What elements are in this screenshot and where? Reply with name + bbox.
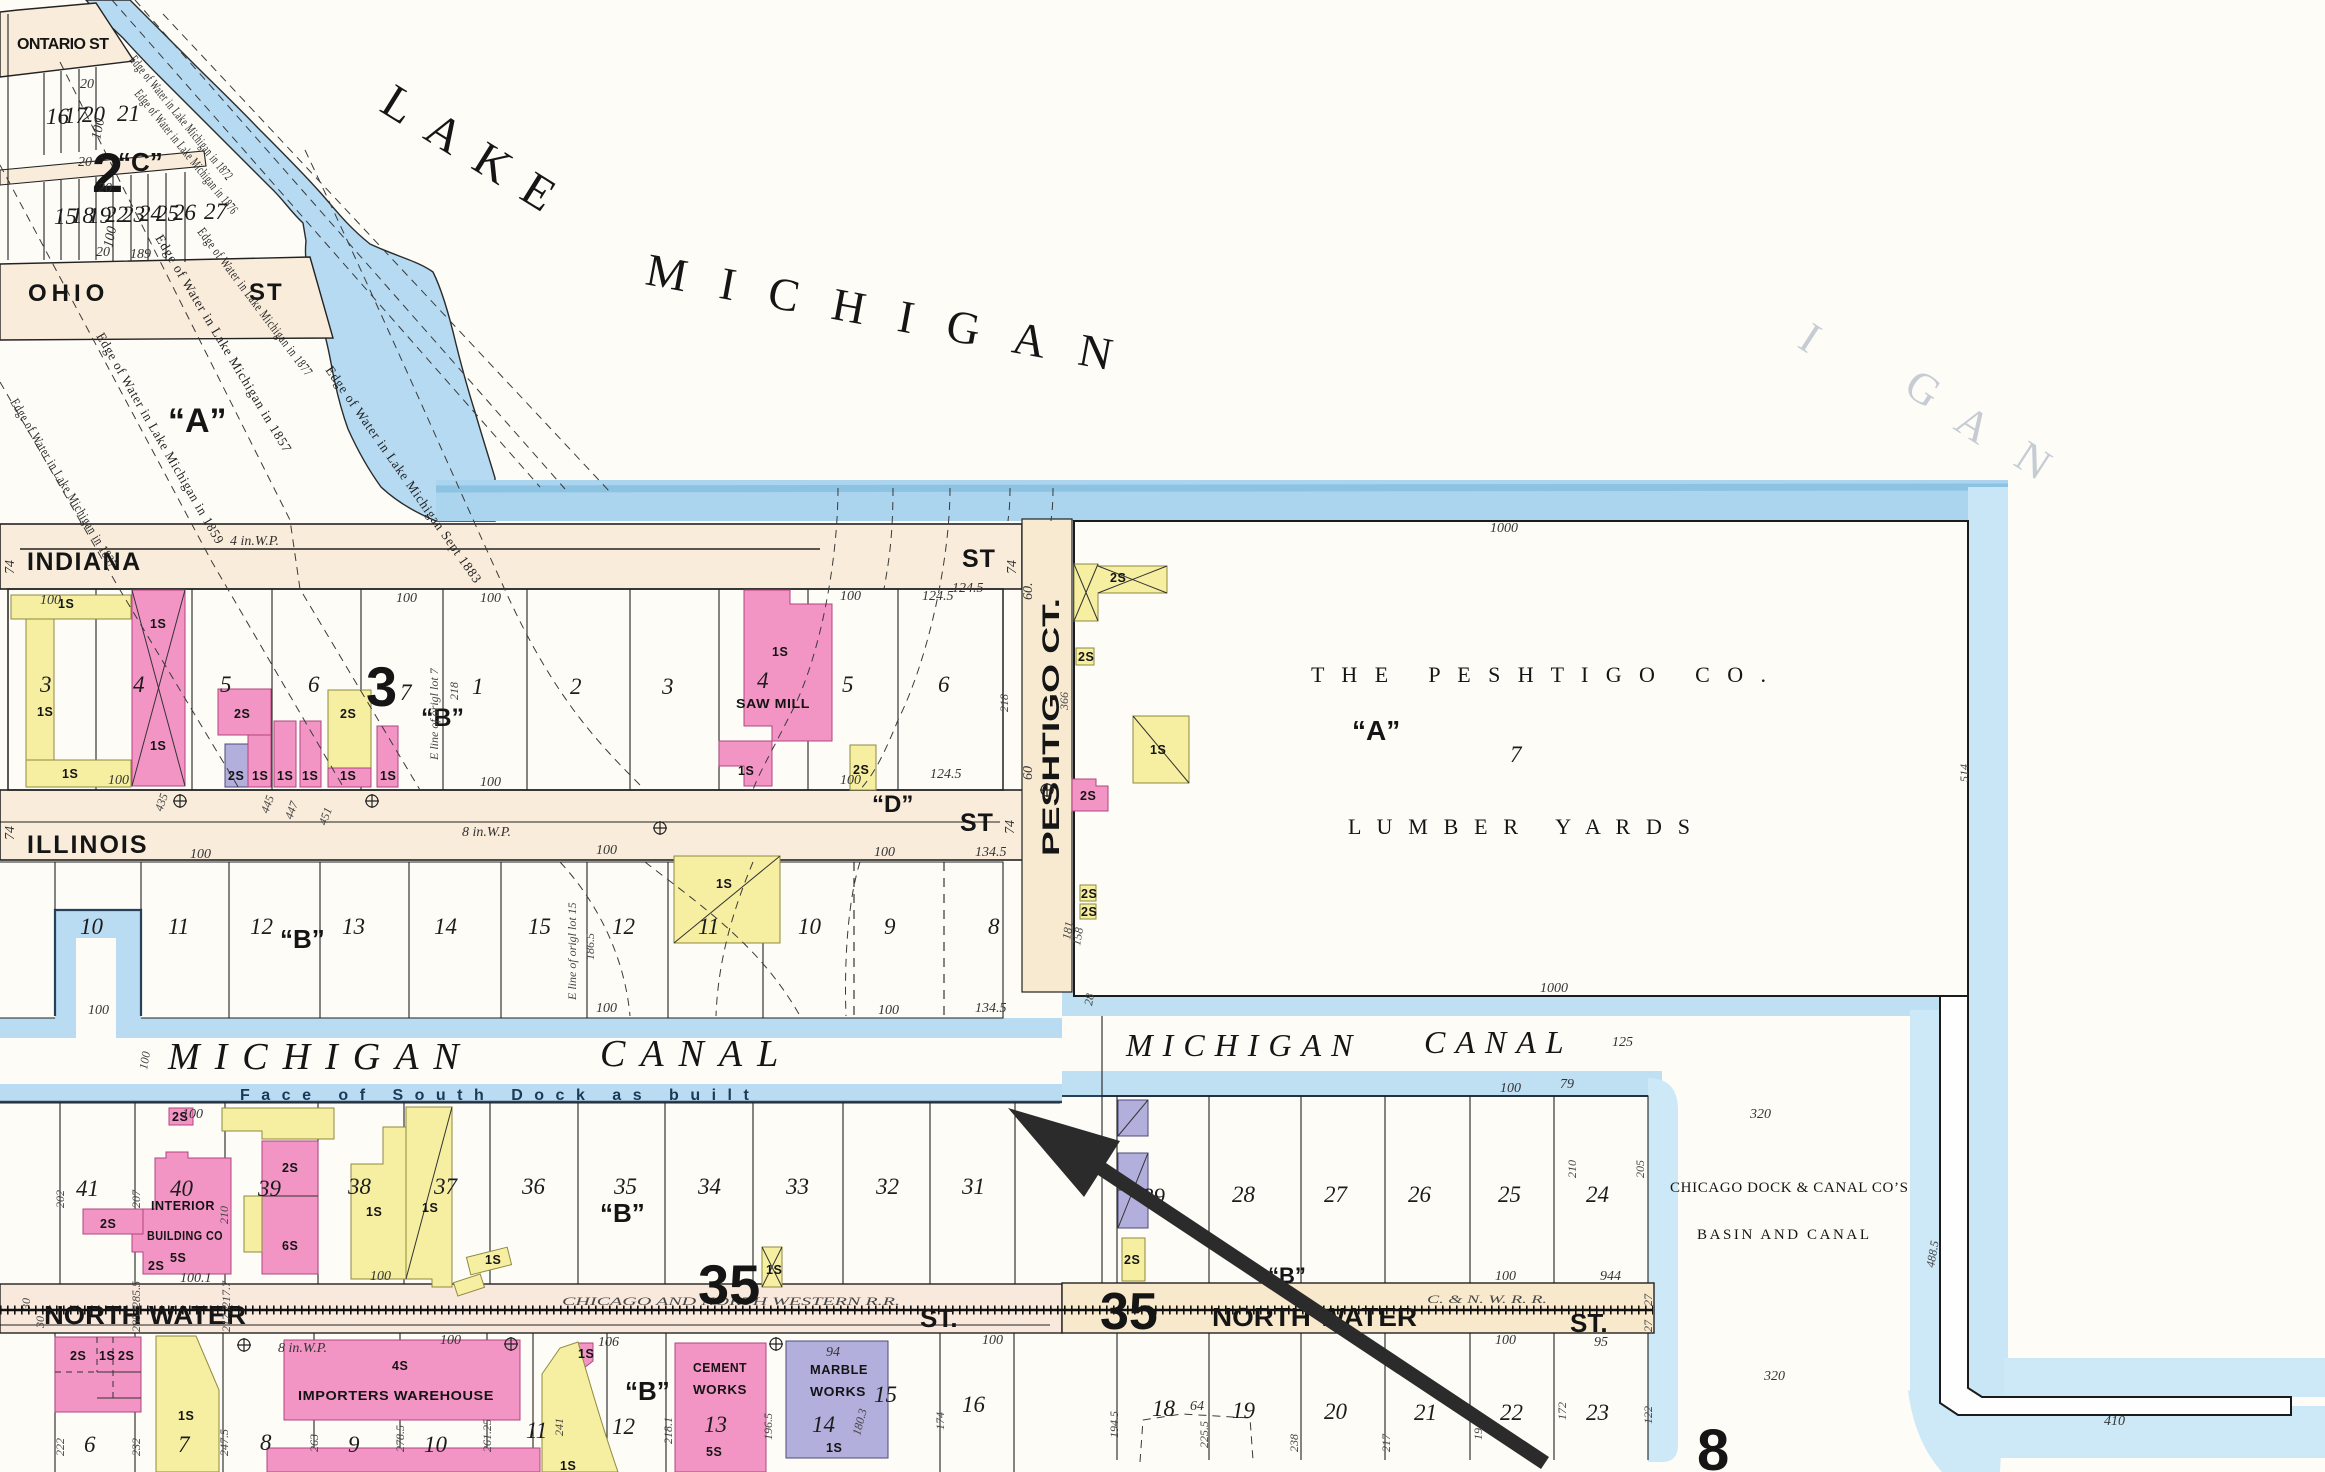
svg-text:“C”: “C” <box>118 147 163 177</box>
svg-text:1S: 1S <box>716 877 732 891</box>
svg-text:2S: 2S <box>1124 1253 1140 1267</box>
svg-text:10: 10 <box>798 914 822 939</box>
svg-text:6: 6 <box>84 1432 96 1457</box>
svg-text:122: 122 <box>1641 1406 1655 1424</box>
svg-text:14: 14 <box>434 914 457 939</box>
svg-text:124.5: 124.5 <box>952 581 984 596</box>
svg-text:4: 4 <box>757 668 769 693</box>
svg-text:31: 31 <box>961 1174 985 1199</box>
svg-text:13: 13 <box>342 914 365 939</box>
svg-text:207: 207 <box>129 1189 143 1208</box>
svg-text:MICHIGAN: MICHIGAN <box>167 1036 474 1078</box>
svg-text:ST.: ST. <box>920 1303 958 1333</box>
svg-text:3: 3 <box>366 655 397 718</box>
svg-text:2S: 2S <box>1081 887 1097 901</box>
svg-text:1S: 1S <box>366 1205 382 1219</box>
svg-text:100: 100 <box>874 845 895 860</box>
svg-text:34: 34 <box>697 1174 721 1199</box>
svg-text:26: 26 <box>1408 1182 1432 1207</box>
svg-text:6: 6 <box>308 672 320 697</box>
svg-text:1S: 1S <box>578 1347 594 1361</box>
svg-text:217: 217 <box>1379 1433 1393 1452</box>
svg-text:12: 12 <box>612 914 635 939</box>
svg-text:7: 7 <box>178 1432 191 1457</box>
svg-text:2S: 2S <box>148 1259 164 1273</box>
svg-text:1S: 1S <box>380 769 396 783</box>
svg-text:NORTH WATER: NORTH WATER <box>44 1300 246 1330</box>
svg-text:134.5: 134.5 <box>975 1001 1007 1016</box>
svg-text:218.1: 218.1 <box>661 1417 675 1444</box>
svg-text:218: 218 <box>997 694 1011 712</box>
svg-text:INDIANA: INDIANA <box>27 548 142 576</box>
svg-text:217.7: 217.7 <box>219 1304 233 1332</box>
svg-text:1S: 1S <box>1150 743 1166 757</box>
svg-text:6: 6 <box>938 672 950 697</box>
svg-text:100: 100 <box>840 773 861 788</box>
svg-text:1S: 1S <box>99 1349 115 1363</box>
svg-text:20: 20 <box>96 245 110 260</box>
svg-text:1S: 1S <box>422 1201 438 1215</box>
svg-text:60: 60 <box>1021 766 1036 780</box>
svg-text:2S: 2S <box>228 769 244 783</box>
svg-text:9: 9 <box>348 1432 360 1457</box>
svg-text:2S: 2S <box>282 1161 298 1175</box>
svg-text:“B”: “B” <box>280 924 325 954</box>
svg-text:1S: 1S <box>560 1459 576 1472</box>
svg-text:20: 20 <box>80 77 94 92</box>
svg-text:100: 100 <box>182 1107 203 1122</box>
svg-text:60.: 60. <box>1021 583 1036 601</box>
svg-text:1S: 1S <box>37 705 53 719</box>
svg-text:30: 30 <box>33 1316 47 1329</box>
svg-text:E line of origl lot 7: E line of origl lot 7 <box>427 667 441 761</box>
svg-text:3: 3 <box>39 672 52 697</box>
svg-text:28: 28 <box>1081 992 1097 1006</box>
svg-text:Face of South Dock as built: Face of South Dock as built <box>240 1087 760 1104</box>
svg-text:IMPORTERS WAREHOUSE: IMPORTERS WAREHOUSE <box>298 1389 494 1403</box>
svg-text:320: 320 <box>1763 1369 1785 1384</box>
svg-text:514: 514 <box>1957 764 1971 782</box>
svg-text:241: 241 <box>552 1418 566 1436</box>
svg-text:1: 1 <box>472 674 484 699</box>
svg-text:CANAL: CANAL <box>1424 1024 1574 1060</box>
svg-text:37: 37 <box>433 1174 459 1199</box>
svg-text:22: 22 <box>1500 1400 1523 1425</box>
svg-text:35: 35 <box>613 1174 637 1199</box>
svg-text:10: 10 <box>424 1432 448 1457</box>
svg-text:11: 11 <box>526 1418 547 1443</box>
svg-text:1S: 1S <box>150 617 166 631</box>
svg-text:1000: 1000 <box>1540 981 1568 996</box>
svg-text:19: 19 <box>1232 1398 1256 1423</box>
svg-text:263: 263 <box>307 1434 321 1452</box>
svg-text:25: 25 <box>1498 1182 1521 1207</box>
svg-text:94: 94 <box>826 1345 840 1360</box>
svg-text:5: 5 <box>220 672 232 697</box>
svg-text:15: 15 <box>528 914 551 939</box>
svg-text:205: 205 <box>1633 1160 1647 1178</box>
svg-text:MARBLE: MARBLE <box>810 1363 868 1377</box>
svg-text:21: 21 <box>1414 1400 1437 1425</box>
svg-text:18: 18 <box>1152 1396 1176 1421</box>
svg-text:“B”: “B” <box>625 1376 670 1406</box>
svg-text:210: 210 <box>217 1206 231 1224</box>
svg-text:100: 100 <box>840 589 861 604</box>
svg-text:6S: 6S <box>282 1239 298 1253</box>
svg-text:124.5: 124.5 <box>922 589 954 604</box>
svg-text:C. & N. W. R. R.: C. & N. W. R. R. <box>1427 1292 1547 1306</box>
svg-text:5S: 5S <box>170 1251 186 1265</box>
svg-text:261.25: 261.25 <box>480 1419 494 1452</box>
svg-text:27: 27 <box>1641 1319 1655 1332</box>
svg-text:CANAL: CANAL <box>600 1033 793 1075</box>
svg-text:100: 100 <box>88 1003 109 1018</box>
svg-text:“B”: “B” <box>600 1198 645 1228</box>
svg-text:38: 38 <box>347 1174 372 1199</box>
svg-text:106: 106 <box>598 1335 619 1350</box>
svg-text:8: 8 <box>260 1430 272 1455</box>
svg-text:189: 189 <box>130 247 151 262</box>
svg-text:196.5: 196.5 <box>761 1413 775 1440</box>
svg-text:64: 64 <box>1190 1399 1204 1414</box>
svg-text:1S: 1S <box>340 769 356 783</box>
svg-text:222: 222 <box>53 1438 67 1456</box>
svg-text:7: 7 <box>400 680 413 705</box>
svg-text:24: 24 <box>1586 1182 1609 1207</box>
svg-text:174: 174 <box>933 1412 947 1430</box>
svg-text:1S: 1S <box>766 1263 782 1277</box>
svg-text:202: 202 <box>53 1190 67 1208</box>
svg-text:ST.: ST. <box>1570 1308 1608 1338</box>
svg-text:210: 210 <box>1565 1160 1579 1178</box>
svg-text:285.5: 285.5 <box>129 1305 143 1332</box>
svg-text:2: 2 <box>570 674 582 699</box>
svg-text:1S: 1S <box>772 645 788 659</box>
svg-text:366: 366 <box>1057 692 1071 711</box>
svg-text:4S: 4S <box>392 1359 408 1373</box>
svg-text:9: 9 <box>884 914 896 939</box>
svg-text:410: 410 <box>2104 1414 2125 1429</box>
svg-text:2S: 2S <box>1110 571 1126 585</box>
svg-text:2S: 2S <box>1078 650 1094 664</box>
svg-text:100: 100 <box>370 1269 391 1284</box>
svg-text:278.5: 278.5 <box>393 1425 407 1452</box>
svg-text:13: 13 <box>704 1412 727 1437</box>
svg-text:100: 100 <box>396 591 417 606</box>
svg-text:41: 41 <box>76 1176 99 1201</box>
svg-text:100: 100 <box>982 1333 1003 1348</box>
svg-text:2S: 2S <box>340 707 356 721</box>
svg-text:2S: 2S <box>234 707 250 721</box>
svg-text:SAW MILL: SAW MILL <box>736 697 810 711</box>
svg-text:BUILDING CO: BUILDING CO <box>147 1229 223 1243</box>
svg-text:20: 20 <box>1324 1399 1348 1424</box>
svg-text:33: 33 <box>785 1174 809 1199</box>
svg-text:2S: 2S <box>118 1349 134 1363</box>
svg-text:1S: 1S <box>302 769 318 783</box>
svg-text:36: 36 <box>521 1174 546 1199</box>
svg-text:39: 39 <box>257 1176 282 1201</box>
svg-text:11: 11 <box>168 914 189 939</box>
svg-text:ILLINOIS: ILLINOIS <box>27 831 149 859</box>
svg-text:8: 8 <box>988 914 1000 939</box>
svg-text:8: 8 <box>1697 1418 1729 1472</box>
svg-text:100.1: 100.1 <box>180 1271 212 1286</box>
svg-text:100: 100 <box>440 1333 461 1348</box>
svg-text:27: 27 <box>1641 1293 1655 1306</box>
svg-text:285.5: 285.5 <box>129 1281 143 1308</box>
svg-text:20: 20 <box>98 181 112 196</box>
svg-text:124.5: 124.5 <box>930 767 962 782</box>
svg-text:4 in.W.P.: 4 in.W.P. <box>230 534 279 549</box>
svg-text:1000: 1000 <box>1490 521 1518 536</box>
svg-text:14: 14 <box>812 1412 835 1437</box>
svg-text:944: 944 <box>1600 1269 1621 1284</box>
svg-text:35: 35 <box>698 1253 760 1316</box>
svg-text:MICHIGAN: MICHIGAN <box>1125 1027 1362 1063</box>
svg-text:12: 12 <box>612 1414 635 1439</box>
svg-text:194.5: 194.5 <box>1107 1411 1121 1438</box>
svg-text:15: 15 <box>874 1382 897 1407</box>
svg-text:28: 28 <box>1232 1182 1256 1207</box>
svg-text:8 in.W.P.: 8 in.W.P. <box>462 825 511 840</box>
svg-text:217.7: 217.7 <box>219 1280 233 1308</box>
svg-text:247.5: 247.5 <box>217 1429 231 1456</box>
svg-text:E line of origl lot 15: E line of origl lot 15 <box>565 902 579 1001</box>
svg-text:“A”: “A” <box>168 402 227 440</box>
svg-text:100: 100 <box>1500 1081 1521 1096</box>
svg-text:5S: 5S <box>706 1445 722 1459</box>
svg-text:30: 30 <box>19 1298 33 1311</box>
svg-text:BASIN AND CANAL: BASIN AND CANAL <box>1697 1227 1869 1243</box>
svg-text:ST: ST <box>960 809 994 837</box>
svg-text:ST: ST <box>962 545 996 573</box>
svg-text:2S: 2S <box>1081 905 1097 919</box>
svg-text:1S: 1S <box>277 769 293 783</box>
svg-text:11: 11 <box>698 914 719 939</box>
svg-text:2S: 2S <box>100 1217 116 1231</box>
svg-text:320: 320 <box>1749 1107 1771 1122</box>
svg-text:218: 218 <box>447 682 461 700</box>
svg-text:100: 100 <box>40 593 61 608</box>
svg-text:74: 74 <box>1003 820 1018 834</box>
svg-text:186.5: 186.5 <box>583 933 597 960</box>
svg-text:100: 100 <box>1495 1269 1516 1284</box>
svg-text:225.5: 225.5 <box>1197 1421 1211 1448</box>
svg-text:“D”: “D” <box>872 791 913 818</box>
svg-text:74: 74 <box>1005 560 1020 574</box>
svg-text:16: 16 <box>962 1392 986 1417</box>
svg-text:INTERIOR: INTERIOR <box>151 1199 215 1213</box>
svg-text:8 in.W.P.: 8 in.W.P. <box>278 1341 327 1356</box>
svg-text:“A”: “A” <box>1352 715 1400 746</box>
svg-text:35: 35 <box>1100 1283 1158 1341</box>
svg-text:100: 100 <box>108 773 129 788</box>
svg-text:100: 100 <box>596 1001 617 1016</box>
svg-text:74: 74 <box>3 560 18 574</box>
svg-text:1S: 1S <box>826 1441 842 1455</box>
svg-text:40: 40 <box>170 1176 194 1201</box>
svg-text:100: 100 <box>878 1003 899 1018</box>
svg-text:1S: 1S <box>252 769 268 783</box>
svg-text:7: 7 <box>1510 742 1523 767</box>
svg-text:1S: 1S <box>150 739 166 753</box>
svg-text:OHIO: OHIO <box>28 280 109 307</box>
svg-text:PESHTIGO CT.: PESHTIGO CT. <box>1038 598 1065 856</box>
svg-text:74: 74 <box>3 826 18 840</box>
svg-text:100: 100 <box>480 591 501 606</box>
svg-text:CEMENT: CEMENT <box>693 1361 747 1375</box>
svg-text:4: 4 <box>133 672 145 697</box>
svg-text:100: 100 <box>190 847 211 862</box>
svg-text:3: 3 <box>661 674 674 699</box>
svg-text:1S: 1S <box>738 764 754 778</box>
svg-text:12: 12 <box>250 914 273 939</box>
svg-text:23: 23 <box>1586 1400 1609 1425</box>
svg-text:32: 32 <box>875 1174 899 1199</box>
svg-text:27: 27 <box>1324 1182 1349 1207</box>
svg-text:238: 238 <box>1287 1434 1301 1452</box>
svg-text:ONTARIO ST: ONTARIO ST <box>17 36 109 53</box>
svg-text:WORKS: WORKS <box>693 1383 747 1397</box>
svg-text:172: 172 <box>1555 1402 1569 1420</box>
svg-text:1S: 1S <box>178 1409 194 1423</box>
svg-text:100: 100 <box>596 843 617 858</box>
svg-text:26: 26 <box>173 200 197 225</box>
svg-text:125: 125 <box>1612 1035 1633 1050</box>
svg-text:20: 20 <box>78 155 92 170</box>
svg-text:232: 232 <box>129 1438 143 1456</box>
svg-text:5: 5 <box>842 672 854 697</box>
svg-text:134.5: 134.5 <box>975 845 1007 860</box>
svg-text:2S: 2S <box>70 1349 86 1363</box>
svg-text:10: 10 <box>80 914 104 939</box>
svg-text:100: 100 <box>480 775 501 790</box>
svg-text:21: 21 <box>117 101 140 126</box>
svg-text:CHICAGO DOCK & CANAL CO’S: CHICAGO DOCK & CANAL CO’S <box>1670 1180 1908 1196</box>
svg-text:WORKS: WORKS <box>810 1385 866 1399</box>
svg-text:1S: 1S <box>62 767 78 781</box>
svg-text:79: 79 <box>1560 1077 1574 1092</box>
svg-text:1S: 1S <box>485 1253 501 1267</box>
svg-text:95: 95 <box>1594 1335 1608 1350</box>
svg-text:100: 100 <box>1495 1333 1516 1348</box>
svg-text:2S: 2S <box>1080 789 1096 803</box>
